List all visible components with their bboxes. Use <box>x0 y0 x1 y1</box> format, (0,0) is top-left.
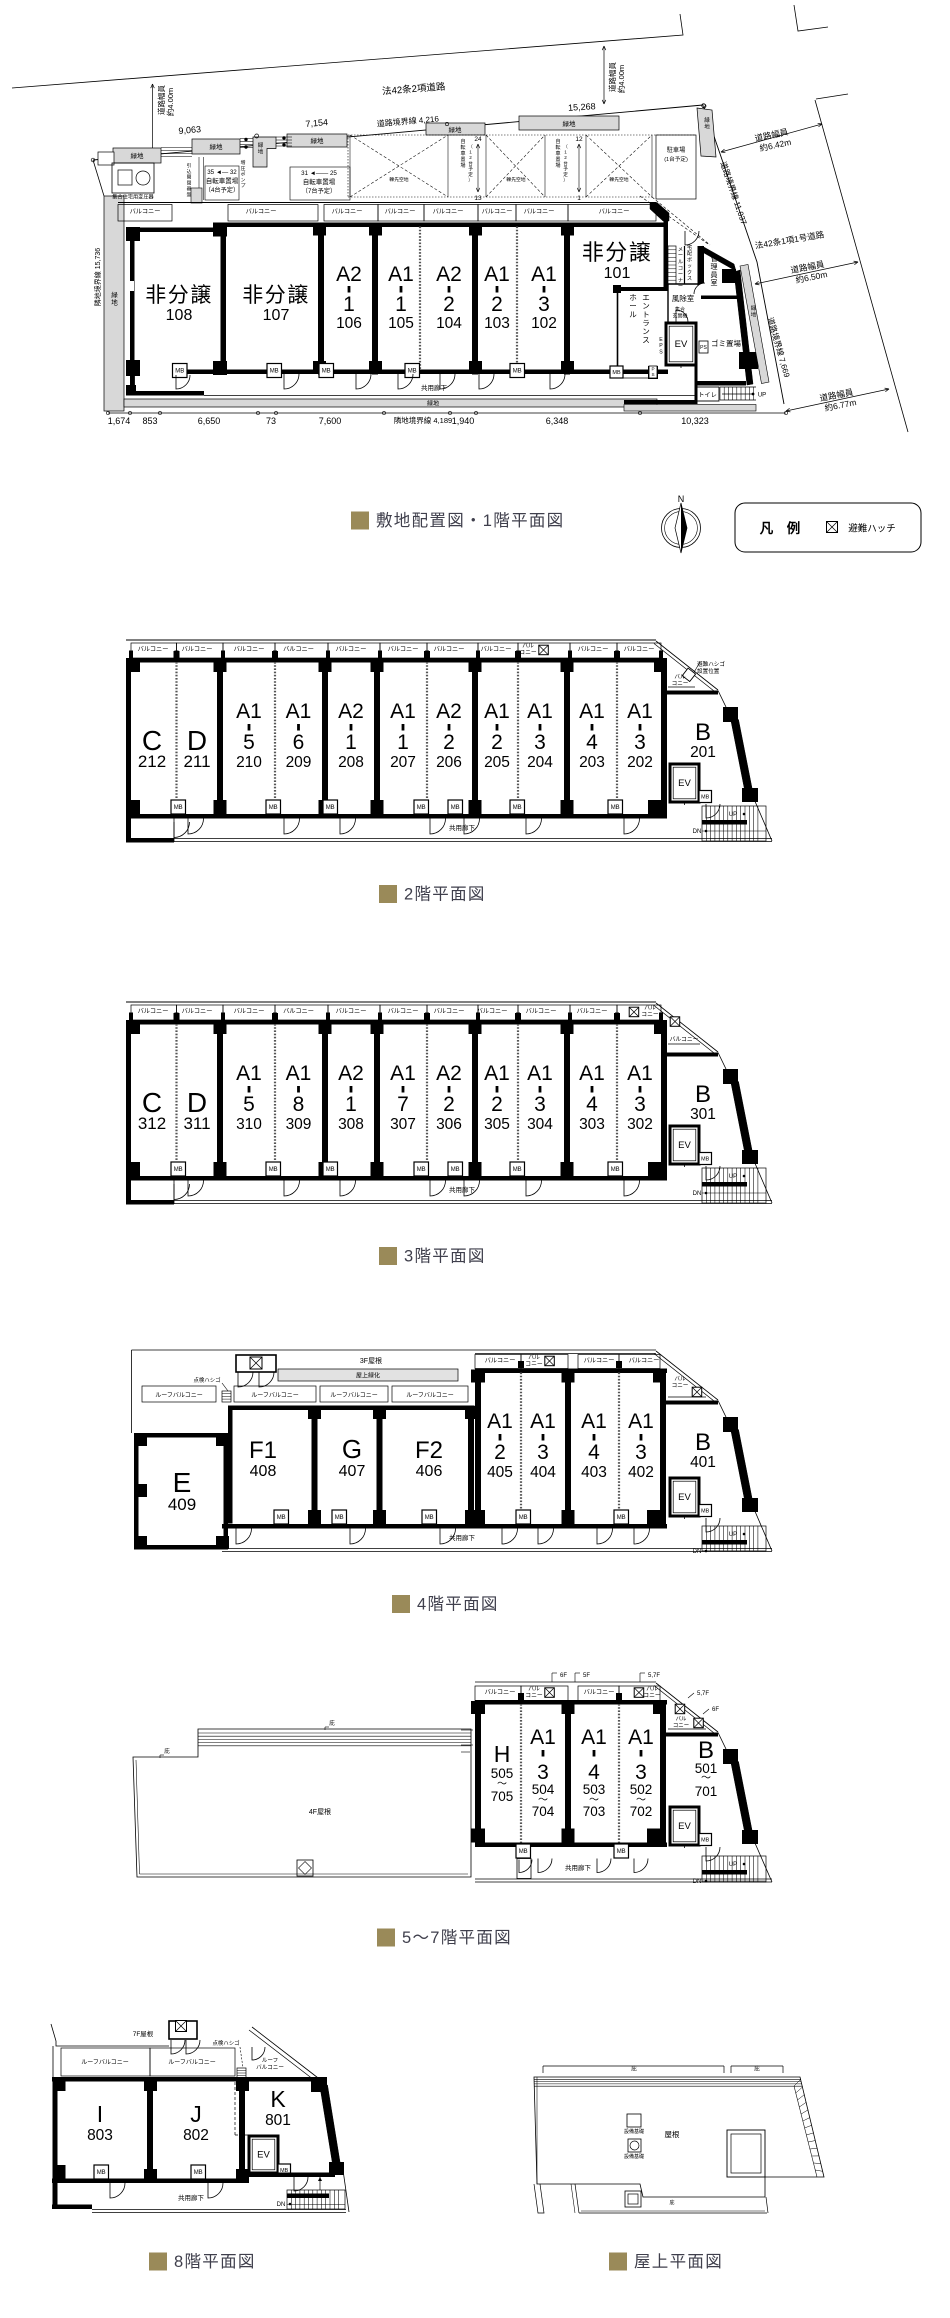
svg-text:7,154: 7,154 <box>305 117 328 129</box>
svg-text:バルコニー: バルコニー <box>584 1689 615 1696</box>
svg-text:8階平面図: 8階平面図 <box>174 2252 256 2271</box>
svg-text:バルコニー: バルコニー <box>477 1008 508 1015</box>
svg-text:E: E <box>173 1467 192 1498</box>
svg-text:A1: A1 <box>628 1726 654 1749</box>
svg-text:210: 210 <box>236 754 262 771</box>
svg-text:）: ） <box>468 178 473 183</box>
svg-text:A1: A1 <box>628 1410 654 1433</box>
svg-text:MB: MB <box>612 370 621 376</box>
svg-text:共用廊下: 共用廊下 <box>178 2193 205 2202</box>
svg-text:A1: A1 <box>581 1410 607 1433</box>
svg-text:道路幅員: 道路幅員 <box>156 85 166 115</box>
svg-text:MB: MB <box>519 1515 528 1521</box>
svg-text:PS: PS <box>700 345 707 351</box>
svg-text:5,7F: 5,7F <box>697 1691 709 1697</box>
svg-text:EV: EV <box>257 2150 270 2161</box>
svg-text:A2: A2 <box>336 263 362 286</box>
svg-text:ゴミ置場: ゴミ置場 <box>711 338 741 348</box>
svg-text:3: 3 <box>537 1441 549 1464</box>
svg-text:予: 予 <box>563 165 568 171</box>
svg-text:UP: UP <box>729 1174 737 1180</box>
svg-text:3: 3 <box>634 731 646 754</box>
svg-text:I: I <box>97 2101 103 2127</box>
svg-text:庇: 庇 <box>669 2199 674 2206</box>
svg-text:管: 管 <box>711 254 718 263</box>
svg-text:ルーフ: ルーフ <box>262 2057 278 2064</box>
svg-text:A1: A1 <box>531 263 557 286</box>
svg-text:73: 73 <box>266 416 276 426</box>
svg-text:1,674: 1,674 <box>108 416 131 426</box>
svg-text:A1: A1 <box>236 700 262 723</box>
svg-text:1: 1 <box>343 293 355 316</box>
svg-text:H: H <box>494 1741 511 1767</box>
svg-text:設備基礎: 設備基礎 <box>624 2153 644 2160</box>
svg-text:1: 1 <box>564 150 567 155</box>
svg-text:5: 5 <box>243 1093 255 1116</box>
svg-text:304: 304 <box>527 1116 553 1133</box>
svg-text:4: 4 <box>588 1441 600 1464</box>
svg-text:場: 場 <box>460 162 465 169</box>
svg-text:（4台予定）: （4台予定） <box>205 186 239 194</box>
svg-text:非分譲: 非分譲 <box>242 284 310 307</box>
svg-text:コニー: コニー <box>525 1360 543 1367</box>
svg-text:A1: A1 <box>388 263 414 286</box>
svg-text:MB: MB <box>513 369 522 375</box>
svg-text:緑地: 緑地 <box>449 125 463 134</box>
svg-text:バルコニー: バルコニー <box>256 2064 284 2071</box>
svg-text:地: 地 <box>751 311 757 319</box>
svg-text:MB: MB <box>194 2170 203 2176</box>
svg-text:704: 704 <box>532 1804 555 1819</box>
svg-text:206: 206 <box>436 754 462 771</box>
svg-text:MB: MB <box>451 1167 460 1173</box>
svg-text:バルコニー: バルコニー <box>670 1036 699 1043</box>
svg-text:101: 101 <box>604 265 631 282</box>
svg-text:道路幅員: 道路幅員 <box>607 62 617 92</box>
svg-text:A1: A1 <box>286 700 312 723</box>
svg-text:庇: 庇 <box>164 1747 170 1755</box>
svg-text:311: 311 <box>183 1114 210 1133</box>
svg-text:UP: UP <box>729 1532 737 1538</box>
svg-text:A2: A2 <box>436 700 462 723</box>
svg-text:2: 2 <box>491 1093 503 1116</box>
svg-text:402: 402 <box>628 1464 654 1481</box>
svg-text:35 ◄— 32: 35 ◄— 32 <box>207 169 237 176</box>
svg-text:A1: A1 <box>581 1726 607 1749</box>
svg-text:405: 405 <box>487 1464 513 1481</box>
svg-text:403: 403 <box>581 1464 607 1481</box>
svg-text:バルコニー: バルコニー <box>482 209 513 216</box>
svg-text:ス: ス <box>687 275 692 282</box>
svg-text:緑: 緑 <box>751 304 757 312</box>
svg-text:バル: バル <box>528 1354 540 1361</box>
svg-text:2: 2 <box>491 293 503 316</box>
svg-text:A2: A2 <box>338 700 364 723</box>
svg-text:ボ: ボ <box>687 255 692 263</box>
svg-text:MB: MB <box>326 1167 335 1173</box>
svg-text:庇: 庇 <box>754 2065 760 2073</box>
svg-text:DN: DN <box>693 1191 702 1197</box>
svg-text:MB: MB <box>519 1849 528 1855</box>
svg-text:DN: DN <box>693 1879 702 1885</box>
svg-text:EV: EV <box>678 1492 691 1503</box>
svg-text:305: 305 <box>484 1116 510 1133</box>
svg-text:406: 406 <box>416 1463 443 1480</box>
svg-text:自転車置場: 自転車置場 <box>206 176 239 185</box>
svg-text:A1: A1 <box>627 1062 653 1085</box>
svg-text:8: 8 <box>293 1093 305 1116</box>
svg-text:205: 205 <box>484 754 510 771</box>
svg-text:MB: MB <box>513 805 522 811</box>
svg-text:バルコニー: バルコニー <box>584 1358 615 1365</box>
svg-text:設備基礎: 設備基礎 <box>624 2128 644 2135</box>
svg-text:N: N <box>678 494 685 504</box>
svg-text:A2: A2 <box>436 263 462 286</box>
svg-text:緑地: 緑地 <box>311 136 325 145</box>
svg-text:B: B <box>695 1081 711 1108</box>
svg-text:2: 2 <box>443 293 455 316</box>
svg-text:避難ハシゴ: 避難ハシゴ <box>697 660 725 668</box>
svg-text:107: 107 <box>263 307 290 324</box>
svg-text:EV: EV <box>678 1140 691 1151</box>
svg-text:MB: MB <box>701 1157 709 1163</box>
svg-text:自: 自 <box>555 138 560 145</box>
svg-text:312: 312 <box>138 1114 166 1133</box>
svg-text:204: 204 <box>527 754 553 771</box>
svg-text:）: ） <box>563 178 568 183</box>
svg-text:DN: DN <box>693 829 702 835</box>
svg-text:MB: MB <box>269 805 278 811</box>
svg-text:緑地: 緑地 <box>563 119 577 128</box>
svg-text:（7台予定）: （7台予定） <box>302 187 336 195</box>
svg-text:202: 202 <box>627 754 653 771</box>
svg-text:ー: ー <box>678 284 683 290</box>
svg-text:105: 105 <box>388 315 414 332</box>
svg-text:ク: ク <box>687 269 692 276</box>
svg-text:A1: A1 <box>579 700 605 723</box>
svg-text:MB: MB <box>513 1167 522 1173</box>
svg-text:209: 209 <box>286 754 312 771</box>
svg-text:MB: MB <box>617 1515 626 1521</box>
svg-text:4階平面図: 4階平面図 <box>417 1595 499 1614</box>
svg-text:プ: プ <box>241 183 246 189</box>
svg-text:2: 2 <box>491 731 503 754</box>
svg-text:バルコニー: バルコニー <box>332 209 363 216</box>
svg-text:2: 2 <box>443 731 455 754</box>
svg-text:バル: バル <box>528 1686 540 1693</box>
svg-text:バルコニー: バルコニー <box>485 1358 516 1365</box>
svg-text:ルーフバルコニー: ルーフバルコニー <box>155 1392 203 1399</box>
svg-text:3階平面図: 3階平面図 <box>404 1247 486 1266</box>
svg-text:バルコニー: バルコニー <box>138 1008 169 1015</box>
svg-text:211: 211 <box>183 752 210 771</box>
svg-text:(1台予定): (1台予定) <box>664 155 688 163</box>
svg-text:309: 309 <box>286 1116 312 1133</box>
svg-text:15,268: 15,268 <box>568 101 596 113</box>
svg-text:コニー: コニー <box>672 680 689 687</box>
svg-text:A1: A1 <box>527 700 553 723</box>
svg-text:引: 引 <box>187 162 192 169</box>
svg-text:A2: A2 <box>436 1062 462 1085</box>
svg-text:1: 1 <box>397 731 409 754</box>
svg-text:MB: MB <box>417 805 426 811</box>
svg-text:轢先空地: 轢先空地 <box>609 176 628 183</box>
svg-text:室: 室 <box>711 278 718 287</box>
svg-text:308: 308 <box>338 1116 364 1133</box>
svg-text:庇: 庇 <box>329 1719 335 1727</box>
svg-text:バルコニー: バルコニー <box>336 646 367 653</box>
svg-text:庇: 庇 <box>631 2065 637 2073</box>
svg-text:3: 3 <box>534 1093 546 1116</box>
svg-text:803: 803 <box>87 2127 113 2144</box>
svg-text:F2: F2 <box>415 1437 443 1464</box>
svg-text:3: 3 <box>634 1093 646 1116</box>
svg-text:6,650: 6,650 <box>198 416 221 426</box>
svg-text:共用廊下: 共用廊下 <box>565 1863 592 1872</box>
svg-text:避難ハッチ: 避難ハッチ <box>848 523 896 535</box>
svg-text:バルコニー: バルコニー <box>434 646 465 653</box>
svg-text:配: 配 <box>687 250 693 257</box>
svg-text:2階平面図: 2階平面図 <box>404 885 486 904</box>
svg-text:共用廊下: 共用廊下 <box>449 1533 476 1542</box>
svg-text:バルコニー: バルコニー <box>182 1008 213 1015</box>
svg-text:705: 705 <box>491 1789 514 1804</box>
svg-text:轢先空地: 轢先空地 <box>389 176 408 183</box>
svg-text:バルコニー: バルコニー <box>526 1008 557 1015</box>
svg-text:801: 801 <box>265 2112 291 2129</box>
svg-text:（: （ <box>563 144 568 149</box>
svg-text:ポ: ポ <box>241 171 246 178</box>
svg-text:バルコニー: バルコニー <box>130 209 161 216</box>
svg-text:UP: UP <box>729 812 737 818</box>
svg-text:緑: 緑 <box>258 141 264 149</box>
svg-text:13: 13 <box>474 195 482 202</box>
svg-text:駐車場: 駐車場 <box>667 146 686 154</box>
svg-text:B: B <box>695 719 711 746</box>
svg-text:6,348: 6,348 <box>546 416 569 426</box>
svg-text:ルーフバルコニー: ルーフバルコニー <box>251 1392 299 1399</box>
svg-text:DN: DN <box>277 2202 286 2208</box>
svg-text:3: 3 <box>534 731 546 754</box>
svg-text:A1: A1 <box>236 1062 262 1085</box>
svg-text:A1: A1 <box>286 1062 312 1085</box>
svg-text:ー: ー <box>678 272 683 278</box>
svg-text:ナ: ナ <box>678 277 683 284</box>
svg-text:ルーフバルコニー: ルーフバルコニー <box>330 1392 378 1399</box>
svg-text:MB: MB <box>408 369 417 375</box>
svg-text:A1: A1 <box>627 700 653 723</box>
svg-text:約4.00m: 約4.00m <box>165 88 175 116</box>
svg-text:コニー: コニー <box>643 1692 661 1699</box>
svg-text:104: 104 <box>436 315 462 332</box>
svg-text:隣地境界線 4,189: 隣地境界線 4,189 <box>394 415 452 425</box>
svg-text:共用廊下: 共用廊下 <box>421 383 448 392</box>
svg-text:集合: 集合 <box>675 306 685 313</box>
svg-text:802: 802 <box>183 2127 209 2144</box>
svg-text:バルコニー: バルコニー <box>481 646 512 653</box>
svg-text:10,323: 10,323 <box>681 416 709 426</box>
svg-text:853: 853 <box>142 416 157 426</box>
svg-text:703: 703 <box>583 1804 606 1819</box>
svg-text:メ: メ <box>678 247 683 253</box>
svg-text:1: 1 <box>577 195 581 202</box>
svg-text:MB: MB <box>611 1167 620 1173</box>
svg-text:MB: MB <box>322 369 331 375</box>
svg-text:バルコニー: バルコニー <box>629 1358 660 1365</box>
svg-text:隣地境界線 15,736: 隣地境界線 15,736 <box>93 248 102 306</box>
svg-text:バルコニー: バルコニー <box>138 646 169 653</box>
svg-text:緑: 緑 <box>111 290 118 299</box>
svg-text:バルコニー: バルコニー <box>433 209 464 216</box>
svg-text:MB: MB <box>417 1167 426 1173</box>
svg-text:ルーフバルコニー: ルーフバルコニー <box>406 1392 454 1399</box>
svg-text:301: 301 <box>690 1106 716 1123</box>
svg-text:轢先空地: 轢先空地 <box>506 176 525 183</box>
svg-text:凡 例: 凡 例 <box>760 520 801 536</box>
svg-text:702: 702 <box>630 1804 653 1819</box>
svg-text:7F屋根: 7F屋根 <box>133 2029 154 2038</box>
svg-text:24: 24 <box>474 136 482 143</box>
svg-text:開: 開 <box>187 175 192 181</box>
svg-text:屋上平面図: 屋上平面図 <box>634 2252 723 2271</box>
svg-text:A1: A1 <box>530 1410 556 1433</box>
svg-text:ー: ー <box>678 253 683 259</box>
svg-text:EV: EV <box>678 778 691 789</box>
svg-text:MB: MB <box>425 1515 434 1521</box>
svg-text:MB: MB <box>326 805 335 811</box>
svg-text:201: 201 <box>690 744 716 761</box>
svg-text:A2: A2 <box>338 1062 364 1085</box>
svg-text:3: 3 <box>635 1761 647 1784</box>
svg-text:コニー: コニー <box>519 649 537 656</box>
svg-text:310: 310 <box>236 1116 262 1133</box>
svg-text:ルーフバルコニー: ルーフバルコニー <box>168 2059 216 2066</box>
svg-text:303: 303 <box>579 1116 605 1133</box>
svg-text:バルコニー: バルコニー <box>246 209 277 216</box>
svg-text:307: 307 <box>390 1116 416 1133</box>
svg-text:A1: A1 <box>484 263 510 286</box>
svg-text:2: 2 <box>443 1093 455 1116</box>
svg-text:2: 2 <box>564 155 567 160</box>
svg-text:バルコニー: バルコニー <box>624 646 655 653</box>
svg-text:S: S <box>659 349 663 355</box>
svg-text:非分譲: 非分譲 <box>582 240 653 265</box>
svg-text:バル: バル <box>674 674 686 681</box>
svg-text:404: 404 <box>530 1464 556 1481</box>
svg-text:3F屋根: 3F屋根 <box>360 1356 382 1365</box>
svg-text:地: 地 <box>258 148 264 156</box>
svg-text:車: 車 <box>460 150 465 157</box>
svg-text:閉: 閉 <box>187 180 192 186</box>
svg-text:約4.00m: 約4.00m <box>616 65 626 93</box>
svg-text:屋根: 屋根 <box>665 2129 680 2139</box>
svg-text:UP: UP <box>758 393 766 399</box>
svg-text:予: 予 <box>468 165 473 171</box>
svg-text:MB: MB <box>174 1167 183 1173</box>
svg-text:トイレ: トイレ <box>698 392 717 399</box>
svg-text:701: 701 <box>695 1784 718 1799</box>
svg-text:～: ～ <box>701 1773 711 1784</box>
svg-text:場: 場 <box>555 162 560 169</box>
svg-text:MB: MB <box>277 1515 286 1521</box>
svg-text:共用廊下: 共用廊下 <box>449 823 476 832</box>
svg-text:B: B <box>695 1429 711 1456</box>
svg-text:407: 407 <box>339 1463 366 1480</box>
svg-text:4: 4 <box>588 1761 600 1784</box>
svg-text:コニー: コニー <box>641 1011 659 1018</box>
svg-text:バルコニー: バルコニー <box>385 209 416 216</box>
svg-text:玄関機: 玄関機 <box>672 313 687 320</box>
svg-text:A1: A1 <box>527 1062 553 1085</box>
svg-text:S: S <box>651 372 654 377</box>
svg-text:9,063: 9,063 <box>178 124 201 136</box>
svg-text:MB: MB <box>701 1838 709 1844</box>
svg-text:緑地: 緑地 <box>427 400 439 408</box>
svg-text:込: 込 <box>187 168 192 175</box>
svg-text:コ: コ <box>678 265 683 272</box>
svg-text:2: 2 <box>469 155 472 160</box>
svg-text:4: 4 <box>586 731 598 754</box>
svg-text:コニー: コニー <box>525 1692 543 1699</box>
svg-text:MB: MB <box>611 805 620 811</box>
svg-text:A1: A1 <box>484 1062 510 1085</box>
svg-text:J: J <box>190 2101 202 2127</box>
svg-text:敷地配置図・1階平面図: 敷地配置図・1階平面図 <box>376 511 564 530</box>
svg-text:点検ハシゴ: 点検ハシゴ <box>213 2039 241 2047</box>
svg-text:点検ハシゴ: 点検ハシゴ <box>194 1376 222 1384</box>
svg-text:1,940: 1,940 <box>452 416 475 426</box>
svg-text:バルコニー: バルコニー <box>388 1008 419 1015</box>
svg-text:ッ: ッ <box>687 264 692 270</box>
svg-text:バルコニー: バルコニー <box>485 1689 516 1696</box>
svg-text:409: 409 <box>168 1495 196 1514</box>
svg-text:バルコニー: バルコニー <box>434 1008 465 1015</box>
svg-text:31 ◄—— 25: 31 ◄—— 25 <box>301 170 337 177</box>
svg-text:バルコニー: バルコニー <box>234 1008 265 1015</box>
svg-text:車: 車 <box>555 150 560 157</box>
svg-text:1: 1 <box>395 293 407 316</box>
svg-text:2: 2 <box>494 1441 506 1464</box>
svg-text:ス: ス <box>642 336 650 345</box>
svg-text:4F屋根: 4F屋根 <box>309 1807 331 1816</box>
svg-text:増: 増 <box>241 159 246 166</box>
svg-text:3: 3 <box>537 1761 549 1784</box>
svg-text:408: 408 <box>250 1463 277 1480</box>
svg-text:401: 401 <box>690 1454 716 1471</box>
svg-text:自転車置場: 自転車置場 <box>303 177 336 186</box>
svg-text:5: 5 <box>243 731 255 754</box>
svg-text:A1: A1 <box>390 700 416 723</box>
svg-text:バルコニー: バルコニー <box>182 646 213 653</box>
svg-text:3: 3 <box>538 293 550 316</box>
svg-text:F1: F1 <box>249 1437 277 1464</box>
svg-text:MB: MB <box>617 1849 626 1855</box>
svg-text:バル: バル <box>646 1686 658 1693</box>
svg-text:共用廊下: 共用廊下 <box>449 1185 476 1194</box>
svg-text:5～7階平面図: 5～7階平面図 <box>402 1928 512 1947</box>
svg-text:12: 12 <box>575 136 583 143</box>
svg-text:MB: MB <box>701 795 709 801</box>
svg-text:306: 306 <box>436 1116 462 1133</box>
svg-text:106: 106 <box>336 315 362 332</box>
svg-text:MB: MB <box>175 369 184 375</box>
svg-text:屋上緑化: 屋上緑化 <box>356 1372 380 1380</box>
svg-text:6F: 6F <box>560 1673 567 1679</box>
svg-text:緑地: 緑地 <box>131 151 145 160</box>
svg-text:集合住宅用変圧器: 集合住宅用変圧器 <box>112 193 154 201</box>
svg-text:A1: A1 <box>487 1410 513 1433</box>
svg-text:B: B <box>698 1737 714 1764</box>
